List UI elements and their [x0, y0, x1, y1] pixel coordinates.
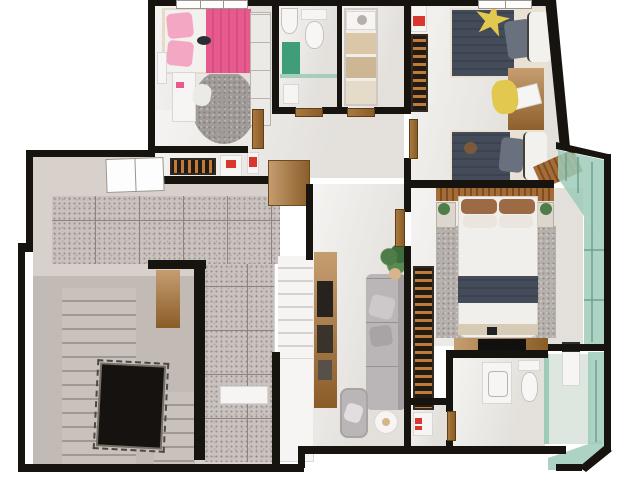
window-bedroom-twin — [478, 0, 532, 9]
door-closet — [348, 109, 374, 116]
door-bathroom-small — [296, 109, 322, 116]
door-bedroom-twin — [410, 120, 417, 158]
door-ensuite — [448, 412, 455, 440]
door-master-bedroom — [396, 210, 404, 246]
openings-layer — [0, 0, 640, 480]
floor-plan — [0, 0, 640, 480]
door-bedroom-pink — [253, 110, 263, 148]
window-stair-hall — [105, 157, 164, 193]
window-bedroom-pink — [176, 0, 248, 9]
